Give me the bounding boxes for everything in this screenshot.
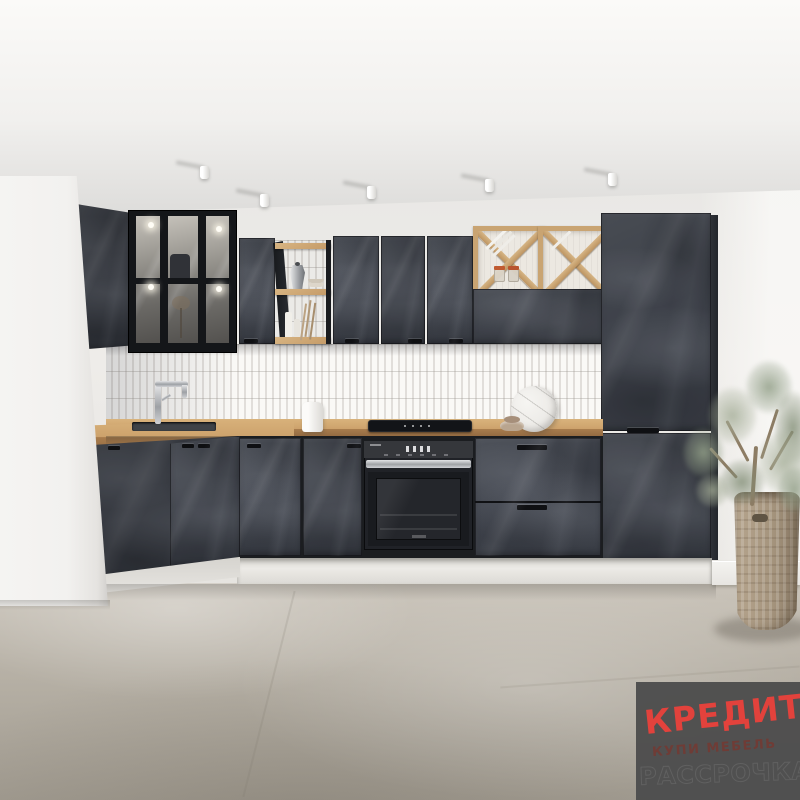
cabinet-handle	[347, 444, 361, 448]
badge-line-installment: РАССРОЧКА	[639, 759, 800, 789]
drawer-handle	[517, 505, 547, 510]
candle	[294, 319, 300, 337]
jar	[494, 269, 505, 282]
oven-handle	[366, 460, 471, 468]
base-door	[303, 438, 362, 556]
faucet-riser	[155, 386, 161, 424]
stoneware-bowl-lid	[504, 416, 520, 423]
corner-base-door	[170, 436, 240, 566]
oven-door-window	[376, 478, 461, 540]
teapot-silhouette	[170, 254, 190, 280]
cabinet-handle	[108, 446, 120, 450]
upper-cabinet-under-cubes	[473, 289, 603, 344]
olive-foliage	[690, 468, 735, 513]
oven-rack	[380, 528, 457, 530]
upper-cabinet-door	[333, 236, 379, 344]
shelf-board-middle	[275, 289, 331, 295]
candle	[285, 312, 292, 337]
base-door	[239, 438, 301, 556]
ceiling-spotlight	[200, 166, 209, 179]
oven-buttons	[384, 454, 454, 456]
jar	[508, 269, 519, 282]
oven-door	[368, 472, 469, 546]
led-spotlight	[216, 286, 222, 292]
moka-pot-lid	[295, 262, 300, 266]
cooktop	[368, 420, 472, 432]
cabinet-handle	[408, 339, 422, 343]
faucet-spout-tip	[182, 385, 187, 398]
drawer-unit	[475, 438, 601, 556]
white-kettle	[302, 402, 323, 432]
ceiling-spotlight	[485, 179, 494, 192]
shelf-side-rail	[326, 240, 331, 344]
base-cabinet-run	[237, 436, 603, 558]
plinth	[237, 558, 712, 584]
oven-rack	[380, 514, 457, 516]
led-spotlight	[148, 284, 154, 290]
credit-watermark-badge: КРЕДИТ КУПИ МЕБЕЛЬ РАССРОЧКА	[636, 682, 800, 800]
drawer-seam	[475, 501, 601, 503]
cabinet-handle	[345, 339, 359, 343]
jar-lid	[508, 266, 519, 270]
jar-lid	[494, 266, 505, 270]
cabinet-handle	[182, 444, 194, 448]
ceiling-spotlight	[608, 173, 617, 186]
oven-model-label	[370, 444, 381, 446]
cooktop-controls	[404, 425, 436, 427]
upper-cabinet-door	[239, 238, 275, 344]
ceiling-spotlight	[260, 194, 269, 207]
oven-brand-mark	[412, 535, 426, 538]
pantry-handle	[627, 428, 659, 433]
upper-cabinet-door	[381, 236, 425, 344]
led-spotlight	[216, 226, 222, 232]
badge-line-buy-furniture: КУПИ МЕБЕЛЬ	[652, 736, 800, 759]
ceiling-spotlight	[367, 186, 376, 199]
ceiling	[0, 0, 800, 216]
shelf-board-bottom	[275, 337, 331, 344]
floor-contact-shadow	[80, 584, 716, 600]
pantry-upper-door	[601, 213, 711, 431]
left-wall-floor-shadow	[0, 600, 110, 610]
shelf-board-top	[275, 243, 331, 249]
open-shelf-unit	[275, 240, 331, 344]
built-in-oven	[364, 441, 473, 550]
cabinet-handle	[244, 339, 258, 343]
led-spotlight	[148, 222, 154, 228]
cabinet-handle	[247, 444, 261, 448]
drawer-handle	[517, 445, 547, 450]
glass-display-cabinet	[128, 210, 237, 353]
flower-stem	[180, 308, 182, 338]
cabinet-handle	[198, 444, 210, 448]
badge-line-credit: КРЕДИТ	[643, 690, 800, 739]
cabinet-handle	[449, 339, 463, 343]
kitchen-product-photo: КРЕДИТ КУПИ МЕБЕЛЬ РАССРОЧКА	[0, 0, 800, 800]
sink	[132, 422, 216, 431]
pot-handle-hole	[752, 514, 768, 522]
upper-cabinet-door	[427, 236, 473, 344]
bowl-stack	[308, 283, 324, 287]
tall-pantry-cabinet	[601, 213, 711, 560]
oven-display	[406, 446, 432, 452]
cabinet-shelf-rail	[134, 278, 231, 284]
oven-control-panel	[364, 441, 473, 458]
